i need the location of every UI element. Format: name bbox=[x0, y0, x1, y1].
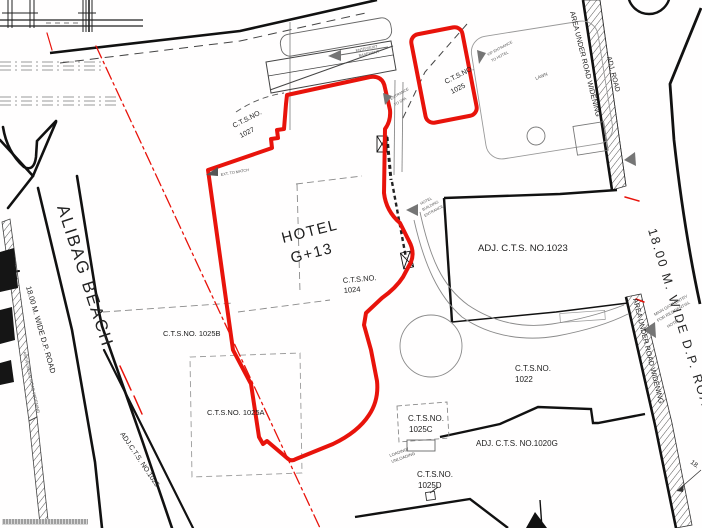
widening-arrow bbox=[624, 152, 636, 166]
site-plan-drawing: ALIBAG BEACH 18.00 M. WIDE D.P. ROAD ARE… bbox=[0, 0, 702, 528]
dimension-text: 18. bbox=[689, 459, 701, 470]
black-parcel-1 bbox=[0, 248, 18, 292]
beach-right-edge bbox=[77, 176, 172, 528]
site-plan-svg: ALIBAG BEACH 18.00 M. WIDE D.P. ROAD ARE… bbox=[0, 0, 702, 528]
gray-dashed-roads bbox=[0, 62, 116, 105]
adj-cts-1020g-label: ADJ. C.T.S. NO.1020G bbox=[476, 439, 558, 448]
illegible-caption bbox=[2, 519, 88, 525]
cts-1024-label-2: 1024 bbox=[343, 285, 360, 295]
hotel-entrance-arrow bbox=[406, 204, 418, 216]
cts-1027-label-1: C.T.S.NO. bbox=[232, 109, 263, 130]
cts-1025-label-2: 1025 bbox=[450, 82, 467, 95]
cts-1025c-label-1: C.T.S.NO. bbox=[408, 414, 444, 423]
cts-1024-label-1: C.T.S.NO. bbox=[342, 273, 376, 285]
cts-1025a-label: C.T.S.NO. 1025A bbox=[207, 408, 265, 417]
cts-1025d-label-1: C.T.S.NO. bbox=[417, 470, 453, 479]
black-parcel-3 bbox=[0, 360, 14, 385]
dp-road-right-edge bbox=[670, 8, 701, 304]
parcel-1023-boundary bbox=[444, 190, 628, 323]
cts-1025d-label-2: 1025D bbox=[418, 481, 442, 490]
north-arrow bbox=[526, 512, 547, 528]
black-parcel-2 bbox=[0, 307, 15, 344]
cts-1025b-label: C.T.S.NO. 1025B bbox=[163, 329, 221, 338]
ext-match-label: EXT. TO MATCH bbox=[220, 168, 249, 177]
entrance-drive bbox=[377, 24, 467, 269]
left-widening-strip bbox=[0, 219, 48, 524]
cts-1027-label-2: 1027 bbox=[239, 126, 256, 139]
lawn-circle bbox=[527, 127, 545, 145]
cts-1025c-label-2: 1025C bbox=[409, 425, 433, 434]
adj-1025-boundary bbox=[104, 350, 193, 528]
cts-1022-label-2: 1022 bbox=[515, 375, 533, 384]
culvert-symbol bbox=[0, 0, 143, 32]
cts-1022-label-1: C.T.S.NO. bbox=[515, 364, 551, 373]
right-road-group bbox=[583, 0, 701, 528]
basement-ramp bbox=[266, 16, 396, 93]
adj-cts-1025-label: ADJ.C.T.S. NO.1025 bbox=[118, 431, 160, 488]
adj-cts-1023-label: ADJ. C.T.S. NO.1023 bbox=[478, 243, 568, 254]
vip-entrance-arrow bbox=[477, 50, 486, 64]
adj-road-arc bbox=[628, 0, 670, 14]
hotel-label-2: G+13 bbox=[289, 240, 335, 267]
lawn-label: LAWN bbox=[535, 71, 549, 80]
turning-circle bbox=[400, 315, 462, 377]
